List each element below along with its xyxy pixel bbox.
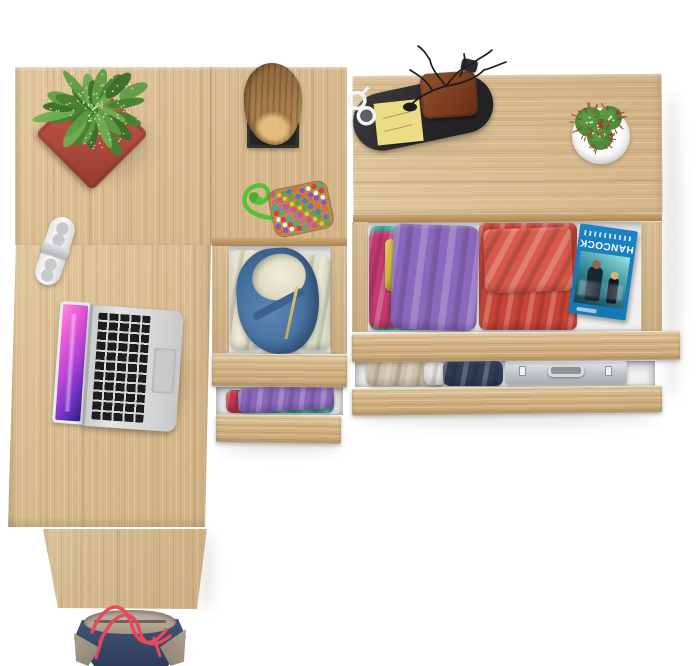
- navy-tote-bag: [72, 596, 188, 666]
- gadget-metal-band: [40, 241, 70, 260]
- bluray-figure-woman: [606, 277, 620, 304]
- bluray-cover-art: [574, 251, 631, 309]
- chest-drawer1-left-wall: [352, 222, 368, 332]
- laptop-trackpad: [151, 347, 176, 393]
- chest-drawer1-right-wall: [641, 222, 662, 332]
- briefcase-handle: [548, 364, 584, 377]
- bluray-figure-man: [584, 266, 604, 302]
- chest-drawer2-front: [352, 385, 662, 415]
- bluray-logo-strip: [576, 307, 596, 314]
- briefcase-latch-left: [519, 366, 526, 376]
- scene-top-view: HANCOCK: [0, 0, 700, 666]
- middle-drawer1-left-rail: [212, 246, 229, 354]
- spotted-plant-leaves: [28, 48, 164, 184]
- chest-drawer1-front: [352, 331, 680, 363]
- purple-cloth-middle: [237, 384, 334, 414]
- laptop-keyboard: [91, 313, 150, 423]
- wood-log-decor: [244, 63, 302, 145]
- tote-red-handles: [72, 594, 188, 666]
- middle-drawer1-front: [212, 353, 347, 387]
- middle-drawer2-front: [216, 414, 341, 444]
- middle-unit-front-edge: [212, 238, 347, 246]
- chest-front-edge: [353, 213, 662, 223]
- aluminum-briefcase: [505, 361, 627, 384]
- cactus-plant: [568, 92, 636, 158]
- purple-cloth-stack-top: [390, 224, 480, 332]
- middle-drawer1-right-rail: [330, 246, 347, 354]
- black-branch-sculpture: [380, 44, 514, 114]
- red-cloth-stack-top: [483, 226, 573, 293]
- briefcase-latch-right: [605, 366, 612, 376]
- hancock-bluray-case: HANCOCK: [568, 223, 638, 320]
- navy-cloth-folded: [443, 361, 503, 386]
- silver-laptop: [52, 299, 185, 435]
- desk-seam: [210, 67, 212, 245]
